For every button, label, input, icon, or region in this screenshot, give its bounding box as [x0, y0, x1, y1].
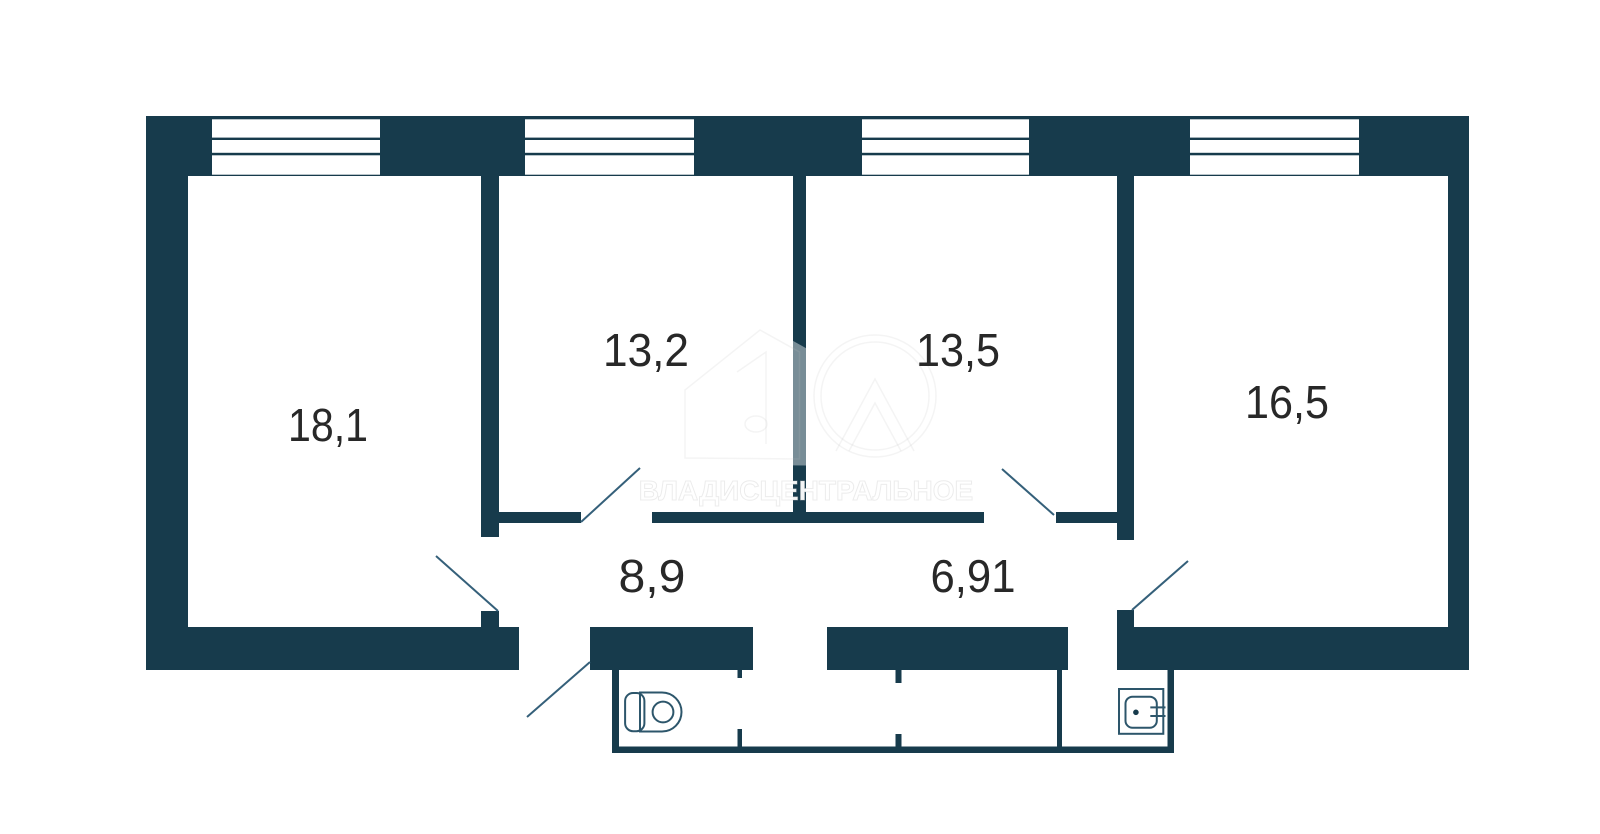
svg-text:ВЛАДИСЦЕНТРАЛЬНОЕ: ВЛАДИСЦЕНТРАЛЬНОЕ: [639, 475, 973, 506]
svg-text:8,9: 8,9: [619, 550, 686, 602]
svg-text:16,5: 16,5: [1245, 376, 1329, 428]
svg-text:13,2: 13,2: [603, 324, 689, 376]
svg-text:18,1: 18,1: [288, 399, 368, 451]
svg-text:13,5: 13,5: [916, 324, 1000, 376]
svg-text:6,91: 6,91: [931, 550, 1016, 602]
